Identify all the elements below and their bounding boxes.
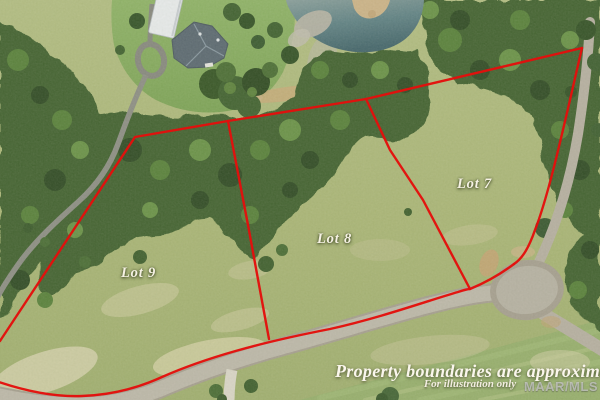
mls-watermark: MAAR/MLS (524, 379, 598, 394)
aerial-photo: Lot 7 Lot 8 Lot 9 Property boundaries ar… (0, 0, 600, 400)
lot-7-label: Lot 7 (457, 176, 492, 193)
lot-9-label: Lot 9 (121, 265, 156, 282)
lot-8-label: Lot 8 (317, 231, 352, 248)
aerial-photo-scene (0, 0, 600, 400)
